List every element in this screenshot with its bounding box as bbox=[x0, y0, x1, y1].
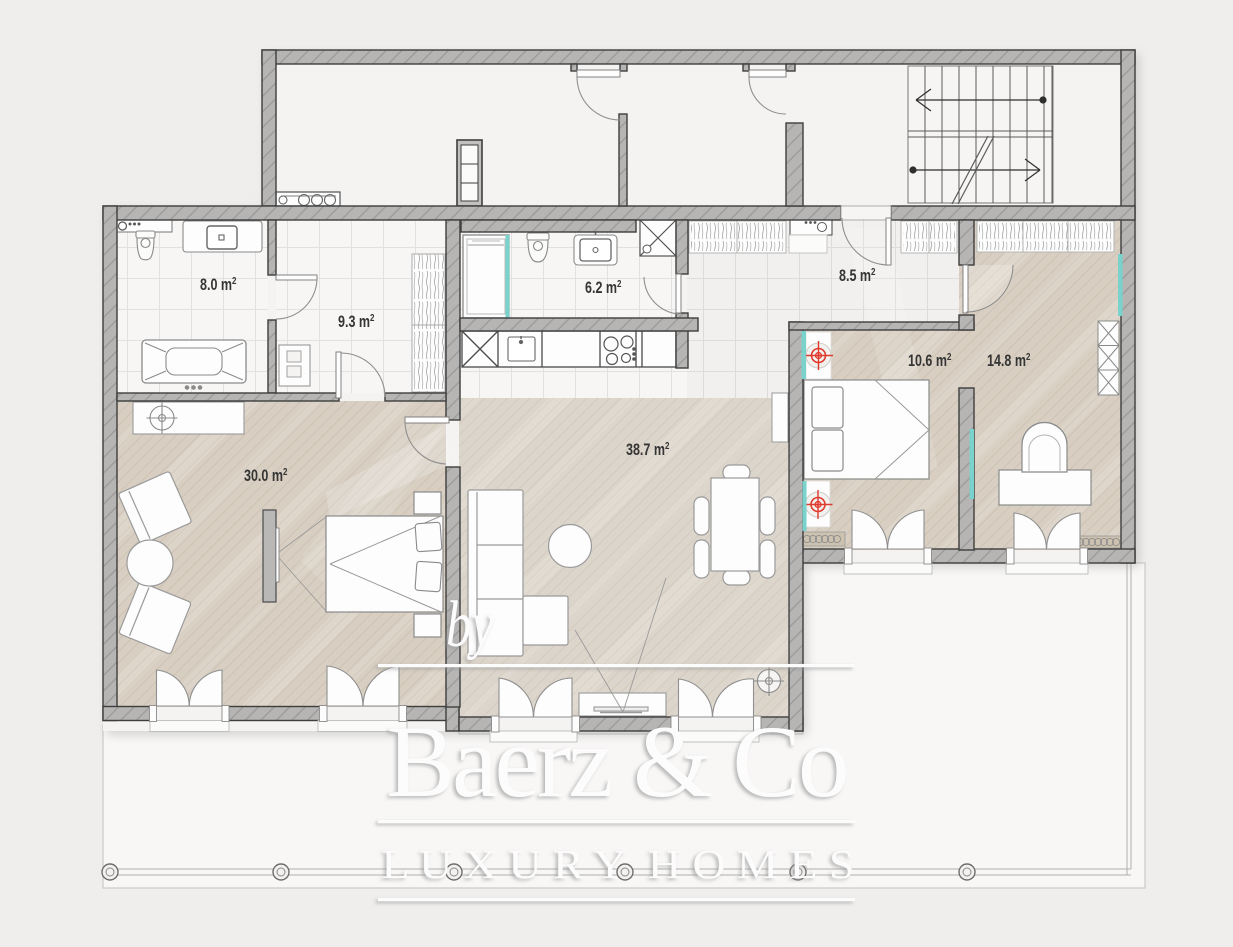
svg-text:L U X U R Y H O M E S: L U X U R Y H O M E S bbox=[382, 841, 855, 887]
svg-text:10.6 m2: 10.6 m2 bbox=[908, 351, 951, 371]
svg-text:38.7 m2: 38.7 m2 bbox=[626, 440, 669, 460]
svg-text:30.0 m2: 30.0 m2 bbox=[244, 466, 287, 486]
svg-text:14.8 m2: 14.8 m2 bbox=[987, 351, 1030, 371]
svg-text:8.0 m2: 8.0 m2 bbox=[200, 275, 236, 295]
svg-text:Baerz & Co: Baerz & Co bbox=[387, 705, 850, 819]
svg-text:by: by bbox=[446, 588, 495, 661]
svg-text:9.3 m2: 9.3 m2 bbox=[338, 312, 374, 332]
svg-text:8.5 m2: 8.5 m2 bbox=[839, 266, 875, 286]
svg-text:6.2 m2: 6.2 m2 bbox=[585, 278, 621, 298]
